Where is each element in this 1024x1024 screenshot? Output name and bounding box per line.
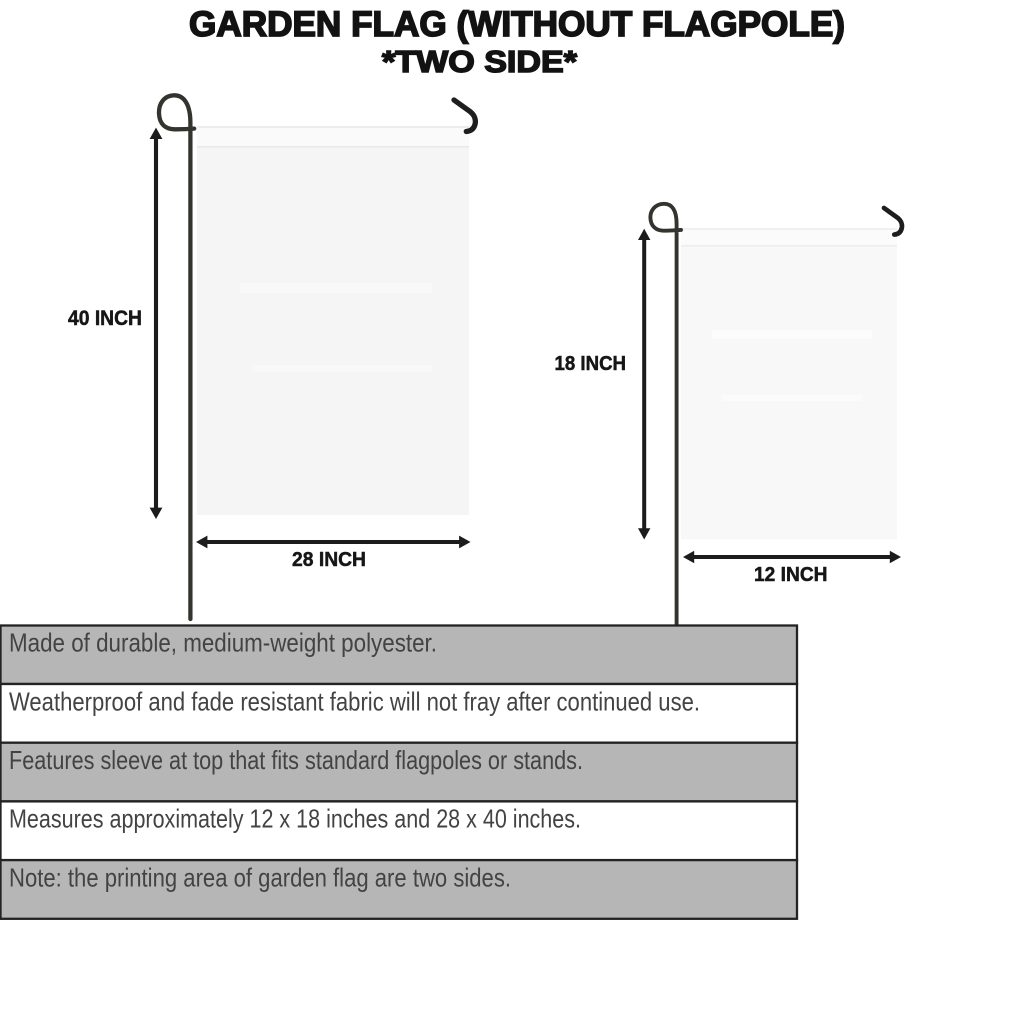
svg-text:12 INCH: 12 INCH [754, 563, 828, 586]
svg-text:18 INCH: 18 INCH [555, 352, 627, 375]
svg-text:Features sleeve at top that fi: Features sleeve at top that fits standar… [9, 745, 583, 775]
svg-text:40 INCH: 40 INCH [68, 306, 142, 330]
svg-text:Made of durable, medium-weight: Made of durable, medium-weight polyester… [9, 628, 437, 658]
svg-text:Note: the printing area of gar: Note: the printing area of garden flag a… [9, 862, 511, 892]
svg-text:Weatherproof and fade resistan: Weatherproof and fade resistant fabric w… [9, 687, 700, 717]
svg-text:Measures approximately 12 x 18: Measures approximately 12 x 18 inches an… [9, 804, 581, 834]
svg-text:28 INCH: 28 INCH [292, 548, 366, 571]
svg-text:GARDEN FLAG (WITHOUT FLAGPOLE): GARDEN FLAG (WITHOUT FLAGPOLE) [189, 4, 845, 44]
svg-text:*TWO SIDE*: *TWO SIDE* [382, 45, 577, 79]
